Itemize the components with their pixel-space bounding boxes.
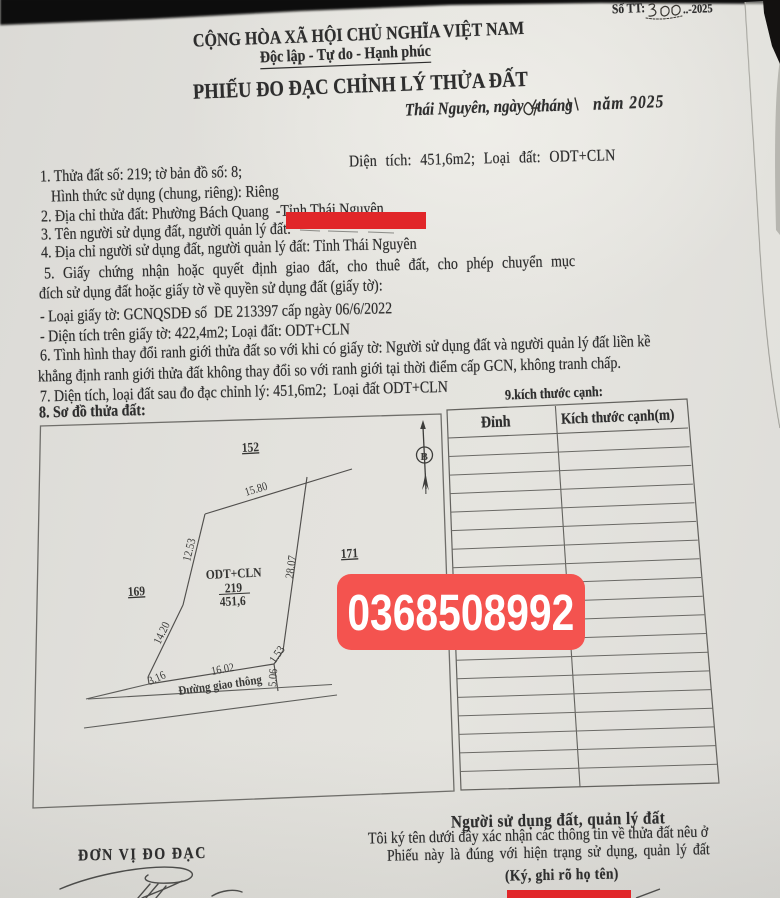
svg-text:451,6: 451,6 (219, 593, 245, 609)
svg-text:12.53: 12.53 (181, 537, 199, 563)
svg-text:15.80: 15.80 (243, 480, 269, 499)
svg-text:3.16: 3.16 (146, 669, 168, 688)
svg-text:28.07: 28.07 (283, 554, 299, 579)
svg-text:1.53: 1.53 (267, 643, 288, 665)
svg-text:5.06: 5.06 (266, 668, 280, 687)
svg-text:171: 171 (340, 545, 358, 561)
svg-text:152: 152 (241, 439, 259, 455)
svg-text:169: 169 (127, 583, 145, 599)
svg-text:B: B (421, 451, 429, 463)
